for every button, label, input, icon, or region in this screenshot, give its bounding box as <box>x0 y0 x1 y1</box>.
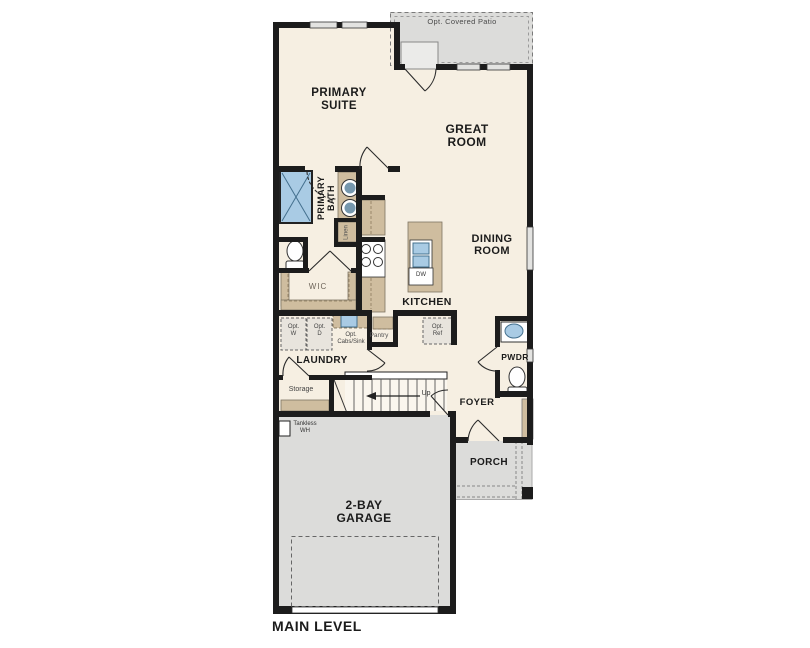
room-label-dining-room: DINING ROOM <box>432 233 552 258</box>
room-label-primary-suite: PRIMARY SUITE <box>279 87 399 113</box>
room-label-wic: WIC <box>298 283 338 292</box>
room-label-great-room: GREAT ROOM <box>407 123 527 150</box>
fixture-label-opt-ref: Opt. Ref <box>423 324 452 337</box>
floor-plan: Opt. Covered Patio PRIMARY SUITE GREAT R… <box>0 0 810 648</box>
room-label-garage: 2-BAY GARAGE <box>314 499 414 526</box>
plan-title: MAIN LEVEL <box>272 619 392 635</box>
floor-plan-drawing <box>0 0 810 648</box>
room-label-foyer: FOYER <box>447 398 507 409</box>
fixture-label-tankless-wh: Tankless WH <box>288 421 322 434</box>
room-label-laundry: LAUNDRY <box>272 355 372 366</box>
room-label-porch: PORCH <box>459 457 519 468</box>
room-label-storage: Storage <box>281 386 321 394</box>
room-label-kitchen: KITCHEN <box>377 297 477 309</box>
fixture-label-dishwasher: DW <box>409 272 433 279</box>
fixture-label-up: Up <box>416 390 436 398</box>
fixture-label-opt-cabs-sink: Opt. Cabs/Sink <box>324 332 378 345</box>
fixture-label-opt-washer: Opt. W <box>281 324 306 337</box>
room-label-primary-bath: PRIMARY BATH <box>316 158 338 238</box>
fixture-label-linen: Linen <box>344 213 353 253</box>
room-label-patio: Opt. Covered Patio <box>392 18 532 26</box>
room-label-pwdr: PWDR <box>495 353 535 363</box>
